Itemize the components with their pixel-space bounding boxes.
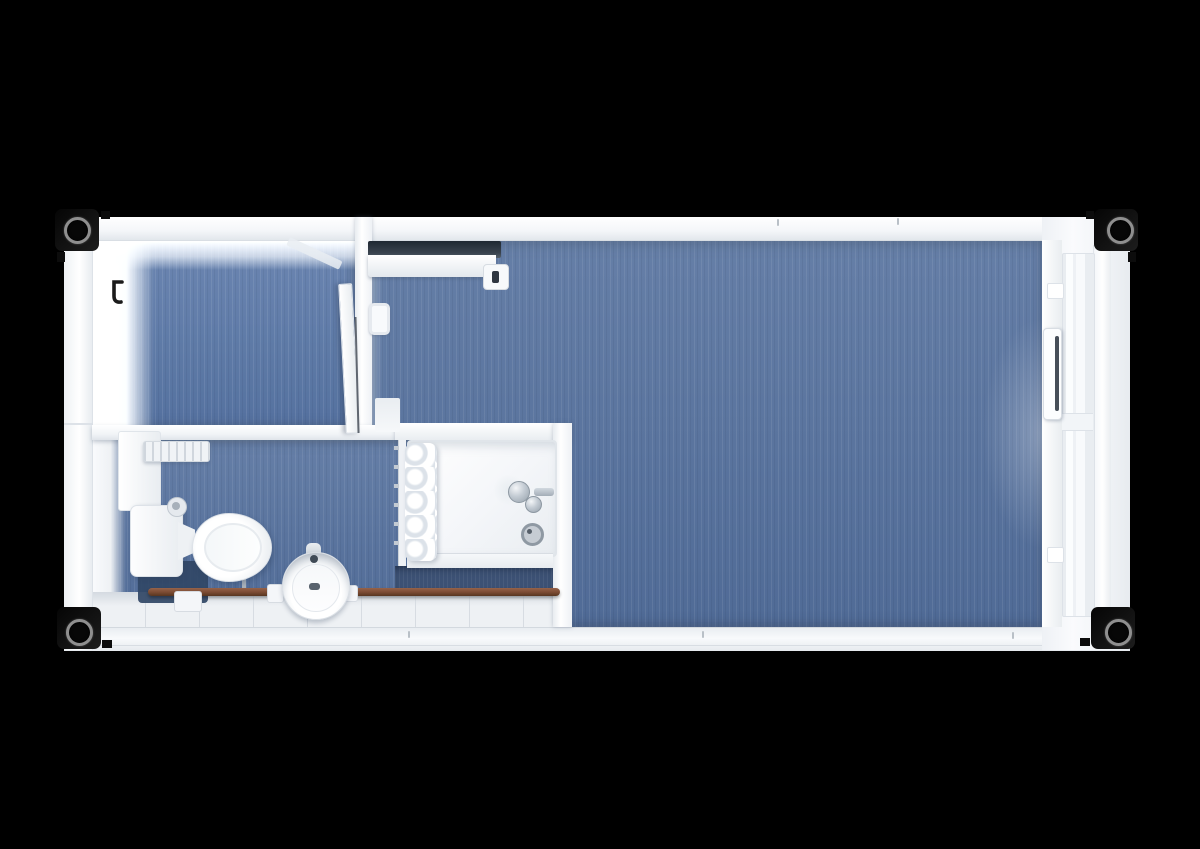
left-wall-seam [64,423,92,425]
left-exterior-wall [64,217,93,650]
entry-door-hinge-top [1047,283,1064,299]
pipe-clip [174,591,202,612]
flush-knob [167,497,187,517]
top-wall-seam-tick [897,218,899,225]
shower-mixer-pipe [534,488,554,496]
bottom-wall-seam-tick [408,631,410,638]
corner-casting-top-left-icon [55,209,99,251]
entry-door-zone [1042,217,1130,650]
sink-drain [309,583,320,590]
casting-hole [1105,619,1132,646]
twistlock-nub [102,640,112,648]
entry-door-cross-rail [1062,413,1093,431]
entry-door-handle [1043,328,1062,420]
entry-door-leaf [1062,253,1095,617]
door-light-glow [982,317,1042,549]
casting-hole [66,619,93,646]
corner-casting-bottom-right-icon [1091,607,1135,649]
bottom-exterior-wall [64,627,1130,651]
shower-drain [521,523,544,546]
top-wall-seam-tick [777,219,779,226]
container-floor-plan [64,217,1130,650]
twistlock-nub [1128,252,1136,262]
twistlock-nub [101,211,110,219]
entry-door-frame [1093,245,1111,623]
interior-door-handle [369,303,390,335]
heater-bracket [483,264,509,290]
wall-heater-front [368,255,496,277]
shower-curtain [405,443,437,561]
ribbed-radiator [143,441,210,462]
casting-hole [64,217,91,244]
bottom-wall-seam-tick [702,631,704,638]
small-office-room-floor [92,240,355,426]
coat-hook-icon [108,279,126,307]
shower-wall-top [395,423,572,440]
twistlock-nub [1086,211,1094,219]
bottom-wall-seam-tick [1012,632,1014,639]
sink-tap-base [310,555,318,563]
corner-casting-top-right-icon [1094,209,1138,251]
twistlock-nub [57,252,65,262]
twistlock-nub [1080,638,1090,646]
shower-mixer-knob-small [525,496,542,513]
entry-door-hinge-bottom [1047,547,1064,563]
corner-casting-bottom-left-icon [57,607,101,649]
casting-hole [1107,217,1134,244]
top-exterior-wall [64,217,1130,241]
floor-plan-canvas [0,0,1200,849]
interior-door-threshold [375,398,400,432]
